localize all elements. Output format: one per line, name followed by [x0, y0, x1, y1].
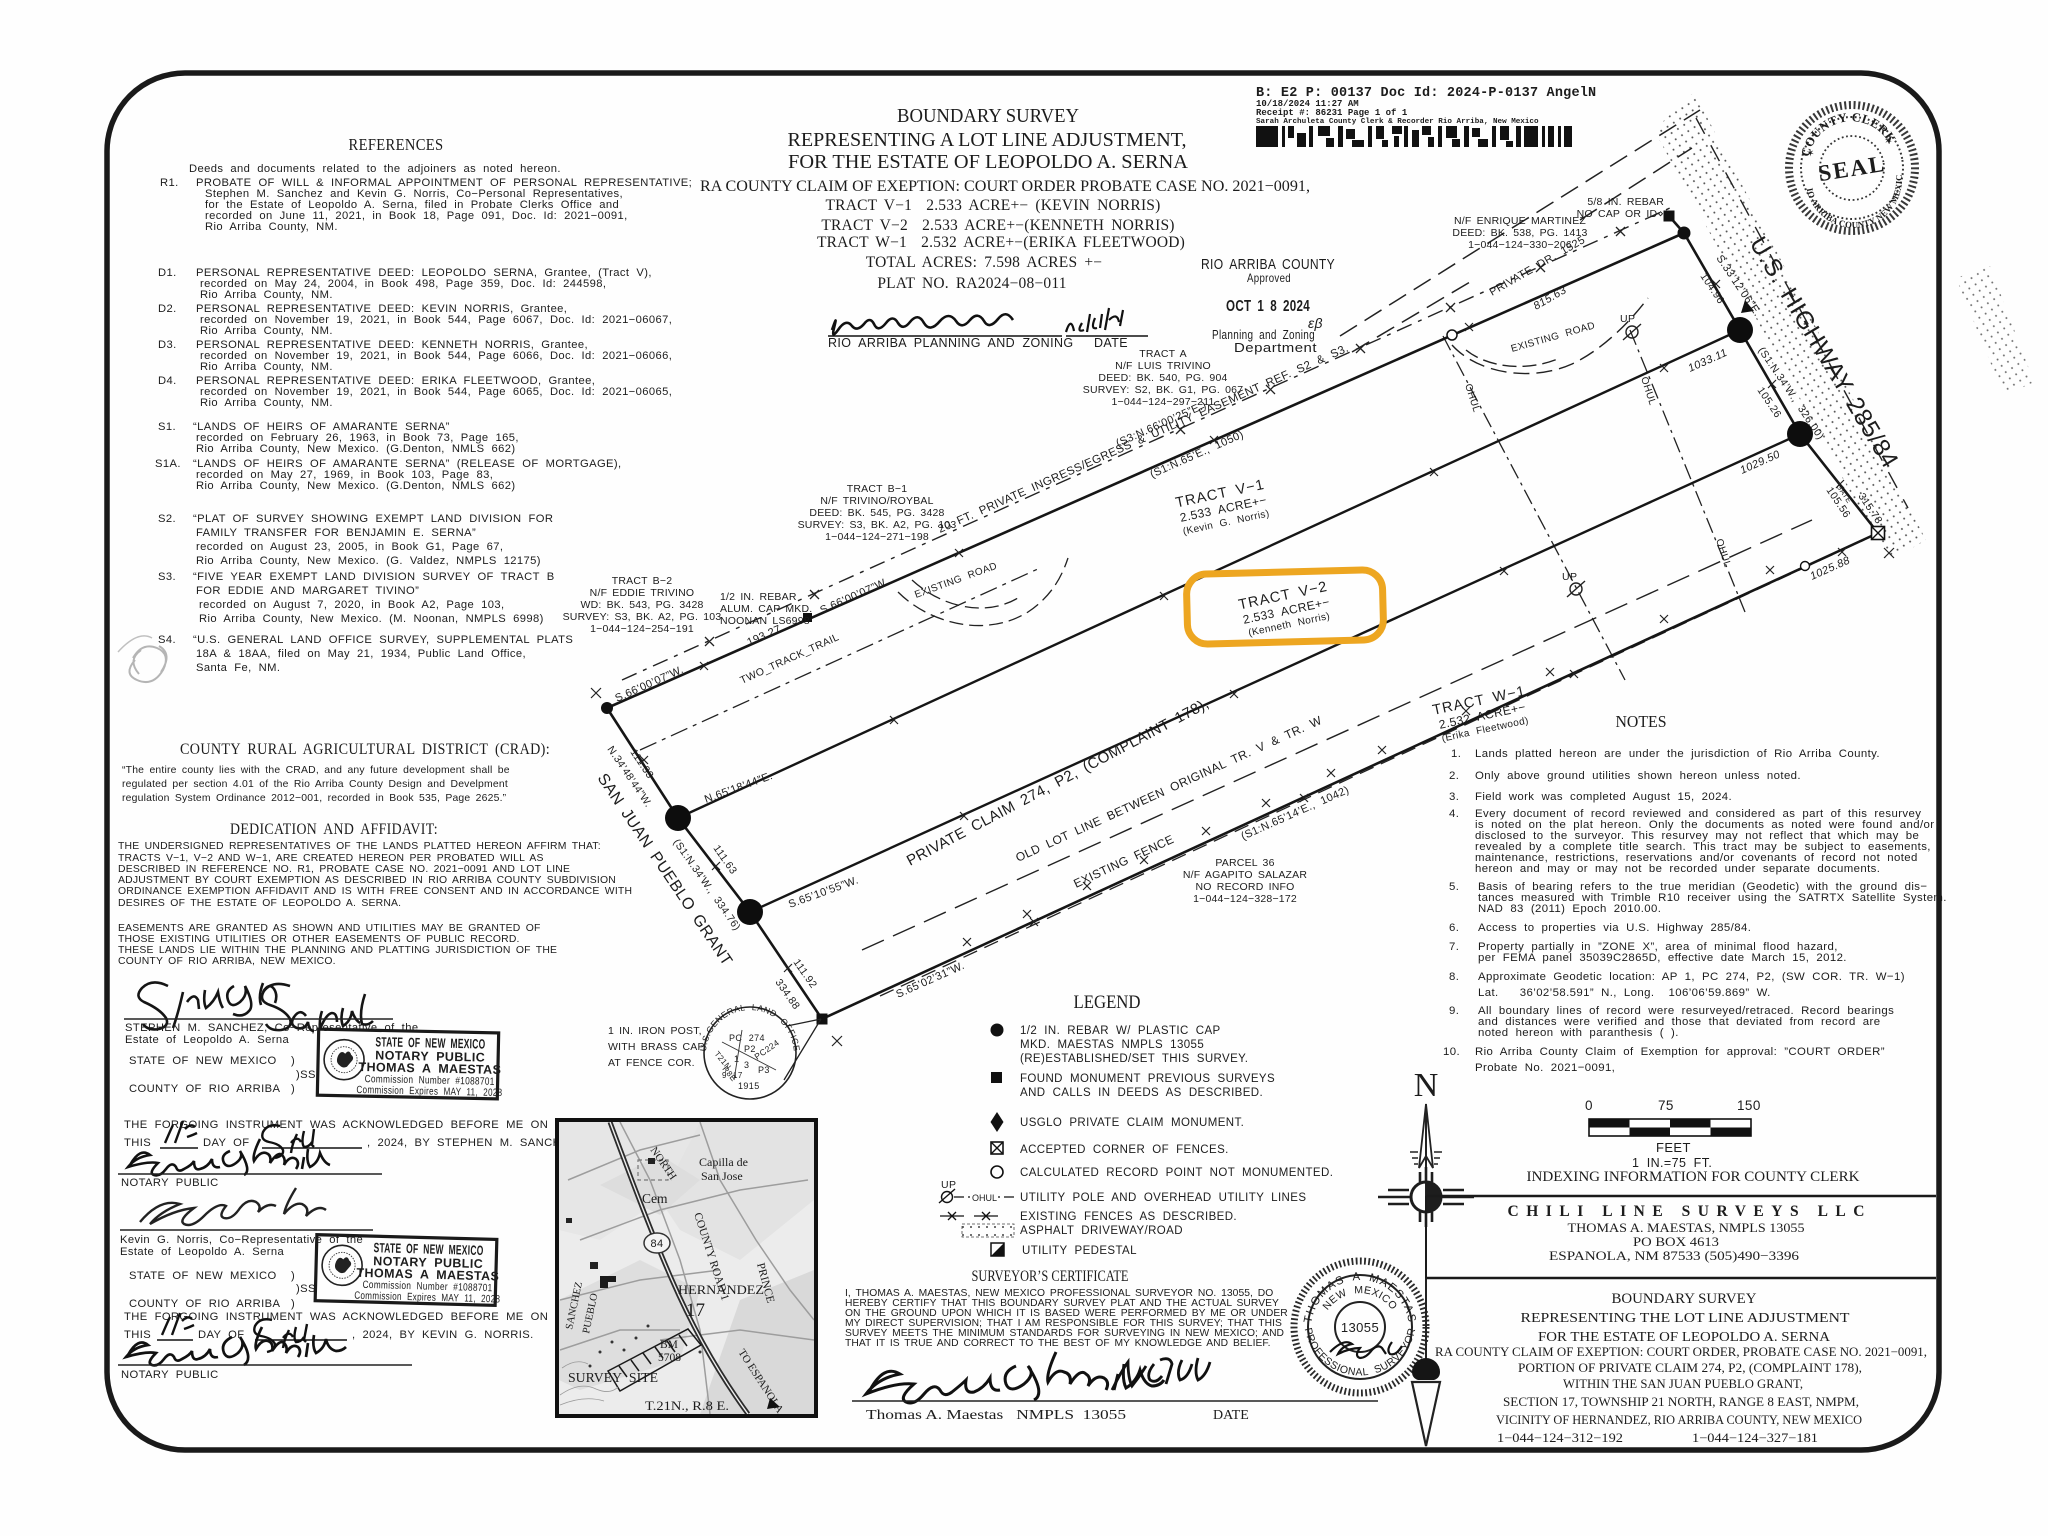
svg-text:5/8 IN. REBAR: 5/8 IN. REBAR — [1587, 196, 1664, 208]
svg-text:DAY OF: DAY OF — [203, 1137, 250, 1149]
svg-text:Rio Arriba County, NM.: Rio Arriba County, NM. — [200, 289, 333, 301]
svg-text:Lands platted hereon are under: Lands platted hereon are under the juris… — [1475, 748, 1880, 760]
svg-text:7.: 7. — [1449, 941, 1459, 953]
svg-text:): ) — [291, 1083, 295, 1095]
svg-text:FOR EDDIE AND MARGARET TIVINO”: FOR EDDIE AND MARGARET TIVINO” — [196, 585, 419, 597]
svg-text:5.: 5. — [1449, 881, 1459, 893]
svg-text:Rio Arriba County, NM.: Rio Arriba County, NM. — [205, 221, 338, 233]
svg-text:)SS: )SS — [296, 1069, 316, 1081]
svg-text:Only above ground utilities sh: Only above ground utilities shown hereon… — [1475, 770, 1801, 782]
svg-text:ORDINANCE EXEMPTION AFFIDAVIT: ORDINANCE EXEMPTION AFFIDAVIT AND IS WIT… — [118, 886, 632, 897]
svg-text:DEDICATION AND AFFIDAVIT:: DEDICATION AND AFFIDAVIT: — [230, 821, 438, 838]
svg-text:MKD. MAESTAS NMPLS 13055: MKD. MAESTAS NMPLS 13055 — [1020, 1039, 1204, 1051]
svg-text:INDEXING INFORMATION FOR COUNT: INDEXING INFORMATION FOR COUNTY CLERK — [1527, 1169, 1860, 1185]
svg-text:Santa Fe, NM.: Santa Fe, NM. — [196, 662, 280, 674]
svg-text:SURVEY: S3, BK. A2, PG. 103: SURVEY: S3, BK. A2, PG. 103 — [563, 611, 722, 623]
svg-text:Approved: Approved — [1247, 271, 1291, 285]
svg-text:Estate of Leopoldo A. Serna: Estate of Leopoldo A. Serna — [125, 1034, 290, 1046]
svg-text:D4.: D4. — [158, 375, 177, 387]
svg-text:1 IN.=75 FT.: 1 IN.=75 FT. — [1632, 1156, 1712, 1170]
svg-text:recorded on August 7, 2020, in: recorded on August 7, 2020, in Book A2, … — [199, 599, 505, 611]
svg-text:UP: UP — [1562, 571, 1577, 583]
svg-text:4.: 4. — [1449, 808, 1459, 820]
svg-text:75: 75 — [1658, 1098, 1674, 1113]
svg-text:per FEMA panel 35039C2865D, ef: per FEMA panel 35039C2865D, effective da… — [1478, 952, 1847, 964]
svg-text:USGLO PRIVATE CLAIM MONUMENT.: USGLO PRIVATE CLAIM MONUMENT. — [1020, 1117, 1244, 1129]
svg-text:SURVEY SITE: SURVEY SITE — [568, 1371, 658, 1386]
svg-text:D2.: D2. — [158, 303, 177, 315]
svg-text:✶: ✶ — [1883, 135, 1893, 147]
svg-text:REPRESENTING A LOT LINE ADJUST: REPRESENTING A LOT LINE ADJUSTMENT, — [788, 129, 1187, 151]
svg-text:PLAT NO. RA2024−08−011: PLAT NO. RA2024−08−011 — [877, 275, 1066, 292]
svg-text:✶: ✶ — [1805, 148, 1815, 160]
svg-text:Deeds and documents related to: Deeds and documents related to the adjoi… — [189, 163, 561, 175]
svg-text:N/F EDDIE TRIVINO: N/F EDDIE TRIVINO — [590, 587, 695, 599]
svg-text:UP: UP — [1620, 313, 1635, 325]
svg-text:9.: 9. — [1449, 1005, 1459, 1017]
svg-text:ESPANOLA, NM 87533 (505)490−33: ESPANOLA, NM 87533 (505)490−3396 — [1549, 1248, 1800, 1263]
svg-text:Thomas A. Maestas NMPLS 130: Thomas A. Maestas NMPLS 13055 — [866, 1408, 1126, 1423]
svg-text:Field work was completed Augus: Field work was completed August 15, 2024… — [1475, 791, 1732, 803]
svg-text:)SS: )SS — [296, 1283, 316, 1295]
svg-text:NOTES: NOTES — [1616, 712, 1667, 731]
svg-text:N/F TRIVINO/ROYBAL: N/F TRIVINO/ROYBAL — [820, 495, 933, 507]
svg-text:D3.: D3. — [158, 339, 177, 351]
svg-text:HERNANDEZ: HERNANDEZ — [678, 1283, 764, 1297]
svg-text:Department: Department — [1234, 341, 1317, 355]
svg-text:150: 150 — [1737, 1098, 1761, 1113]
svg-text:“The entire county lies with t: “The entire county lies with the CRAD, a… — [122, 765, 510, 776]
svg-text:S2.: S2. — [158, 513, 176, 525]
svg-text:“U.S. GENERAL LAND OFFICE SURV: “U.S. GENERAL LAND OFFICE SURVEY, SUPPLE… — [193, 634, 573, 646]
svg-text:RIO ARRIBA PLANNING AND ZONING: RIO ARRIBA PLANNING AND ZONING — [828, 336, 1074, 350]
svg-text:Rio Arriba County, New Mexico.: Rio Arriba County, New Mexico. (G. Valde… — [196, 555, 541, 567]
svg-text:17: 17 — [686, 1300, 705, 1321]
svg-text:S1.: S1. — [158, 421, 176, 433]
svg-text:THIS: THIS — [124, 1329, 151, 1341]
svg-text:Capilla de: Capilla de — [699, 1155, 748, 1169]
svg-text:Planning and Zoning: Planning and Zoning — [1212, 328, 1315, 342]
svg-text:S3.: S3. — [158, 571, 176, 583]
svg-text:Lat. 36’02’58.591” N., Long.: Lat. 36’02’58.591” N., Long. 106’06’59.8… — [1478, 987, 1771, 999]
svg-text:EASEMENTS ARE GRANTED AS SHOWN: EASEMENTS ARE GRANTED AS SHOWN AND UTILI… — [118, 923, 541, 934]
svg-text:regulation System Ordinance 20: regulation System Ordinance 2012−001, re… — [122, 793, 507, 804]
svg-text:18A & 18AA, filed on May 21, 1: 18A & 18AA, filed on May 21, 1934, Publi… — [196, 648, 526, 660]
svg-text:Receipt #: 86231 Page 1 of 1: Receipt #: 86231 Page 1 of 1 — [1256, 108, 1408, 118]
svg-text:PARCEL 36: PARCEL 36 — [1215, 857, 1274, 869]
svg-text:THOSE EXISTING UTILITIES OR OT: THOSE EXISTING UTILITIES OR OTHER EASEME… — [118, 934, 520, 945]
svg-text:5708: 5708 — [658, 1352, 681, 1364]
svg-text:Rio Arriba County, New Mexico.: Rio Arriba County, New Mexico. (M. Noona… — [199, 613, 544, 625]
svg-text:STEPHEN M. SANCHEZ, Co−Represe: STEPHEN M. SANCHEZ, Co−Representative of… — [125, 1022, 418, 1034]
svg-text:FOR THE ESTATE OF LEOPOLDO A.: FOR THE ESTATE OF LEOPOLDO A. SERNA — [1538, 1330, 1831, 1345]
svg-text:DESIRES OF THE ESTATE OF LEOPO: DESIRES OF THE ESTATE OF LEOPOLDO A. SER… — [118, 898, 401, 909]
svg-text:THE UNDERSIGNED REPRESENTATIVE: THE UNDERSIGNED REPRESENTATIVES OF THE L… — [118, 841, 601, 852]
svg-text:8.: 8. — [1449, 971, 1459, 983]
svg-text:NO CAP OR ID⋄: NO CAP OR ID⋄ — [1577, 208, 1665, 220]
svg-text:N/F ENRIQUE MARTINEZ: N/F ENRIQUE MARTINEZ — [1454, 215, 1586, 227]
svg-text:1−044−124−297−211: 1−044−124−297−211 — [1111, 396, 1214, 408]
svg-text:BOUNDARY SURVEY: BOUNDARY SURVEY — [897, 105, 1079, 127]
svg-text:D1.: D1. — [158, 267, 177, 279]
svg-text:OHUL: OHUL — [972, 1193, 997, 1203]
svg-text:NO RECORD INFO: NO RECORD INFO — [1196, 881, 1295, 893]
svg-text:STATE OF NEW MEXICO: STATE OF NEW MEXICO — [129, 1055, 277, 1067]
svg-text:San Jose: San Jose — [701, 1169, 743, 1183]
svg-text:WITH BRASS CAP,: WITH BRASS CAP, — [608, 1041, 706, 1053]
svg-text:DEED: BK. 540, PG. 904: DEED: BK. 540, PG. 904 — [1098, 372, 1227, 384]
svg-text:(RE)ESTABLISHED/SET THIS SURVE: (RE)ESTABLISHED/SET THIS SURVEY. — [1020, 1053, 1248, 1065]
svg-text:84: 84 — [650, 1238, 663, 1250]
svg-text:WD: BK. 543, PG. 3428: WD: BK. 543, PG. 3428 — [580, 599, 703, 611]
svg-text:Rio Arriba County, NM.: Rio Arriba County, NM. — [200, 361, 333, 373]
svg-text:NOONAN LS6998: NOONAN LS6998 — [720, 615, 810, 627]
svg-text:FEET: FEET — [1656, 1140, 1691, 1155]
svg-text:2.: 2. — [1449, 770, 1459, 782]
svg-text:Rio Arriba County, New Mexico.: Rio Arriba County, New Mexico. (G.Denton… — [196, 443, 516, 455]
svg-text:NOTARY PUBLIC: NOTARY PUBLIC — [121, 1369, 219, 1381]
svg-text:10.: 10. — [1443, 1046, 1460, 1058]
svg-text:FOR THE ESTATE OF LEOPOLDO A.: FOR THE ESTATE OF LEOPOLDO A. SERNA — [788, 151, 1189, 173]
svg-text:hereon and may or may not be r: hereon and may or may not be recorded un… — [1475, 863, 1880, 875]
svg-text:THIS: THIS — [124, 1137, 151, 1149]
svg-text:STATE OF NEW MEXICO: STATE OF NEW MEXICO — [129, 1270, 277, 1282]
svg-text:OCT 1 8 2024: OCT 1 8 2024 — [1226, 298, 1310, 315]
svg-text:Sarah Archuleta County Clerk &: Sarah Archuleta County Clerk & Recorder … — [1256, 118, 1539, 126]
svg-text:NAD 83 (2011) Epoch 2010.00.: NAD 83 (2011) Epoch 2010.00. — [1478, 903, 1661, 915]
svg-text:Approximate Geodetic location:: Approximate Geodetic location: AP 1, PC … — [1478, 971, 1905, 983]
svg-text:SURVEY: S3, BK. A2, PG. 103: SURVEY: S3, BK. A2, PG. 103 — [798, 519, 957, 531]
svg-text:ASPHALT DRIVEWAY/ROAD: ASPHALT DRIVEWAY/ROAD — [1020, 1225, 1183, 1237]
svg-text:1/2 IN. REBAR: 1/2 IN. REBAR — [720, 591, 797, 603]
svg-text:1−044−124−328−172: 1−044−124−328−172 — [1193, 893, 1297, 905]
svg-text:TRACT V−1 2.533 ACRE+− (KEVIN: TRACT V−1 2.533 ACRE+− (KEVIN NORRIS) — [825, 197, 1160, 214]
svg-text:THAT IT IS TRUE AND CORRECT TO: THAT IT IS TRUE AND CORRECT TO THE BEST … — [845, 1338, 1271, 1349]
svg-text:S4.: S4. — [158, 634, 176, 646]
svg-text:noted hereon with paranthesis: noted hereon with paranthesis ( ). — [1478, 1027, 1679, 1039]
svg-text:recorded on August 23, 2005, i: recorded on August 23, 2005, in Book G1,… — [196, 541, 503, 553]
svg-text:REFERENCES: REFERENCES — [349, 135, 444, 154]
svg-text:13055: 13055 — [1341, 1320, 1379, 1335]
svg-text:TRACT B−1: TRACT B−1 — [847, 483, 908, 495]
svg-text:AND CALLS IN DEEDS AS DESCRIBE: AND CALLS IN DEEDS AS DESCRIBED. — [1020, 1087, 1263, 1099]
svg-text:Estate of Leopoldo A. Serna: Estate of Leopoldo A. Serna — [120, 1246, 285, 1258]
svg-text:PORTION OF PRIVATE CLAIM 274,: PORTION OF PRIVATE CLAIM 274, P2, (COMPL… — [1518, 1361, 1862, 1375]
svg-text:FOUND MONUMENT PREVIOUS SURVEY: FOUND MONUMENT PREVIOUS SURVEYS — [1020, 1073, 1275, 1085]
svg-text:9 17: 9 17 — [722, 1071, 743, 1080]
svg-text:DEED: BK. 538, PG. 1413: DEED: BK. 538, PG. 1413 — [1452, 227, 1587, 239]
svg-text:EXISTING FENCES AS DESCRIBED.: EXISTING FENCES AS DESCRIBED. — [1020, 1211, 1237, 1223]
svg-text:COUNTY OF RIO ARRIBA, NEW MEXI: COUNTY OF RIO ARRIBA, NEW MEXICO. — [118, 956, 336, 967]
svg-text:T.21N., R.8 E.: T.21N., R.8 E. — [645, 1399, 729, 1413]
svg-text:UTILITY PEDESTAL: UTILITY PEDESTAL — [1022, 1245, 1137, 1257]
svg-text:): ) — [291, 1298, 295, 1310]
svg-text:THOMAS A. MAESTAS, NMPLS 13055: THOMAS A. MAESTAS, NMPLS 13055 — [1568, 1220, 1805, 1235]
svg-text:REPRESENTING THE LOT LINE ADJU: REPRESENTING THE LOT LINE ADJUSTMENT — [1521, 1311, 1850, 1326]
svg-text:COUNTY RURAL AGRICULTURAL DIST: COUNTY RURAL AGRICULTURAL DISTRICT (CRAD… — [180, 741, 550, 758]
svg-text:regulated per section 4.01 of: regulated per section 4.01 of the Rio Ar… — [122, 779, 508, 790]
svg-text:TOTAL ACRES: 7.598 ACRES +−: TOTAL ACRES: 7.598 ACRES +− — [866, 254, 1102, 271]
svg-text:1−044−124−254−191: 1−044−124−254−191 — [590, 623, 694, 635]
svg-text:1.: 1. — [1451, 748, 1461, 760]
svg-text:N/F AGAPITO SALAZAR: N/F AGAPITO SALAZAR — [1183, 869, 1308, 881]
svg-text:WITHIN THE SAN JUAN PUEBLO GRA: WITHIN THE SAN JUAN PUEBLO GRANT, — [1563, 1377, 1803, 1391]
svg-text:SECTION 17, TOWNSHIP 21 NORTH,: SECTION 17, TOWNSHIP 21 NORTH, RANGE 8 E… — [1503, 1395, 1859, 1409]
svg-text:PO BOX 4613: PO BOX 4613 — [1633, 1234, 1719, 1249]
svg-text:COUNTY OF RIO ARRIBA: COUNTY OF RIO ARRIBA — [129, 1083, 280, 1095]
svg-text:): ) — [291, 1270, 295, 1282]
svg-text:NOTARY PUBLIC: NOTARY PUBLIC — [121, 1177, 219, 1189]
svg-text:1915: 1915 — [738, 1081, 760, 1091]
svg-text:TRACT A: TRACT A — [1139, 348, 1187, 360]
svg-text:, 2024, BY KEVIN G. NORRIS.: , 2024, BY KEVIN G. NORRIS. — [352, 1329, 534, 1341]
svg-text:TRACT V−2 2.533 ACRE+−(KENNET: TRACT V−2 2.533 ACRE+−(KENNETH NORRIS) — [821, 217, 1174, 234]
svg-text:UTILITY POLE AND OVERHEAD UTIL: UTILITY POLE AND OVERHEAD UTILITY LINES — [1020, 1192, 1306, 1204]
svg-text:P3: P3 — [758, 1065, 770, 1075]
svg-text:“PLAT OF SURVEY SHOWING EXEMPT: “PLAT OF SURVEY SHOWING EXEMPT LAND DIVI… — [193, 513, 553, 525]
svg-text:Rio Arriba County, NM.: Rio Arriba County, NM. — [200, 397, 333, 409]
svg-text:Rio Arriba County, NM.: Rio Arriba County, NM. — [200, 325, 333, 337]
svg-text:DATE: DATE — [1213, 1408, 1249, 1423]
svg-text:Probate No. 2021−0091,: Probate No. 2021−0091, — [1475, 1062, 1615, 1074]
svg-text:COUNTY OF RIO ARRIBA: COUNTY OF RIO ARRIBA — [129, 1298, 280, 1310]
svg-text:RA COUNTY CLAIM OF EXEPTION: C: RA COUNTY CLAIM OF EXEPTION: COURT ORDER… — [1435, 1345, 1927, 1359]
svg-text:Cem: Cem — [642, 1191, 668, 1206]
svg-text:THE FORGOING INSTRUMENT WAS AC: THE FORGOING INSTRUMENT WAS ACKNOWLEDGED… — [124, 1119, 548, 1131]
svg-text:1 IN. IRON POST,: 1 IN. IRON POST, — [608, 1025, 702, 1037]
svg-text:1−044−124−330−206: 1−044−124−330−206 — [1468, 239, 1572, 251]
svg-text:RA COUNTY CLAIM OF EXEPTION: C: RA COUNTY CLAIM OF EXEPTION: COURT ORDER… — [700, 178, 1310, 195]
svg-text:SURVEY: S2, BK. G1, PG. 067: SURVEY: S2, BK. G1, PG. 067 — [1083, 384, 1244, 396]
svg-text:ADJUSTMENT BY COURT EXEMPTION: ADJUSTMENT BY COURT EXEMPTION AS DESCRIB… — [118, 875, 616, 886]
svg-text:AT FENCE COR.: AT FENCE COR. — [608, 1057, 695, 1069]
svg-text:THESE LANDS LIE WITHIN THE PLA: THESE LANDS LIE WITHIN THE PLANNING AND … — [118, 945, 557, 956]
svg-text:BM: BM — [660, 1339, 678, 1351]
svg-text:PC 274: PC 274 — [729, 1033, 765, 1043]
svg-text:CALCULATED RECORD POINT NOT MO: CALCULATED RECORD POINT NOT MONUMENTED. — [1020, 1167, 1333, 1179]
svg-text:TRACTS V−1, V−2 AND W−1, ARE C: TRACTS V−1, V−2 AND W−1, ARE CREATED HER… — [118, 853, 544, 864]
svg-text:1−044−124−327−181: 1−044−124−327−181 — [1692, 1431, 1818, 1445]
svg-text:TRACT W−1 2.532 ACRE+−(ERIKA: TRACT W−1 2.532 ACRE+−(ERIKA FLEETWOOD) — [817, 234, 1185, 251]
svg-text:TRACT B−2: TRACT B−2 — [612, 575, 673, 587]
svg-text:N/F LUIS TRIVINO: N/F LUIS TRIVINO — [1115, 360, 1211, 372]
svg-text:1/2 IN. REBAR W/ PLASTIC CAP: 1/2 IN. REBAR W/ PLASTIC CAP — [1020, 1025, 1221, 1037]
svg-text:DATE: DATE — [1094, 336, 1128, 350]
svg-text:S1A.: S1A. — [155, 458, 181, 470]
svg-text:): ) — [291, 1055, 295, 1067]
svg-text:FAMILY TRANSFER FOR BENJAMIN E: FAMILY TRANSFER FOR BENJAMIN E. SERNA” — [196, 527, 476, 539]
svg-text:LEGEND: LEGEND — [1074, 992, 1141, 1013]
svg-text:6.: 6. — [1449, 922, 1459, 934]
svg-text:ALUM. CAP MKD.: ALUM. CAP MKD. — [720, 603, 812, 615]
svg-text:3: 3 — [744, 1060, 749, 1070]
svg-text:DAY OF: DAY OF — [198, 1329, 245, 1341]
svg-text:3.: 3. — [1449, 791, 1459, 803]
svg-text:DEED: BK. 545, PG. 3428: DEED: BK. 545, PG. 3428 — [809, 507, 944, 519]
svg-text:1−044−124−271−198: 1−044−124−271−198 — [825, 531, 929, 543]
svg-text:R1.: R1. — [160, 177, 179, 189]
svg-text:0: 0 — [1585, 1098, 1593, 1113]
svg-text:N: N — [1414, 1067, 1439, 1104]
svg-text:BOUNDARY SURVEY: BOUNDARY SURVEY — [1612, 1291, 1757, 1307]
svg-text:VICINITY OF HERNANDEZ, RIO ARR: VICINITY OF HERNANDEZ, RIO ARRIBA COUNTY… — [1496, 1413, 1862, 1427]
svg-text:“FIVE YEAR EXEMPT LAND DIVISIO: “FIVE YEAR EXEMPT LAND DIVISION SURVEY O… — [193, 571, 555, 583]
svg-text:Rio Arriba County Claim of Exe: Rio Arriba County Claim of Exemption for… — [1475, 1046, 1885, 1058]
svg-text:, 2024, BY STEPHEN M. SANCHEZ.: , 2024, BY STEPHEN M. SANCHEZ. — [367, 1137, 580, 1149]
svg-text:DESCRIBED IN REFERENCE NO. R1,: DESCRIBED IN REFERENCE NO. R1, PROBATE C… — [118, 864, 570, 875]
svg-text:SURVEYOR’S CERTIFICATE: SURVEYOR’S CERTIFICATE — [972, 1268, 1129, 1285]
svg-text:Access to properties via U.S.: Access to properties via U.S. Highway 28… — [1478, 922, 1751, 934]
svg-text:Rio Arriba County, New Mexico.: Rio Arriba County, New Mexico. (G.Denton… — [196, 480, 516, 492]
svg-text:1−044−124−312−192: 1−044−124−312−192 — [1497, 1431, 1623, 1445]
svg-text:ACCEPTED CORNER OF FENCES.: ACCEPTED CORNER OF FENCES. — [1020, 1144, 1229, 1156]
